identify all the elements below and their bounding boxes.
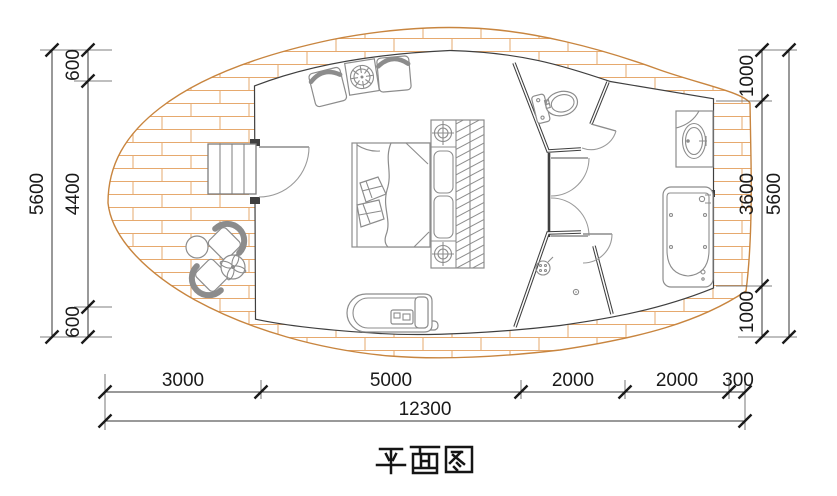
dim-left-600-top: 600 [63,49,84,81]
page-title-text: 平面图 [356,438,496,482]
daybed-cushion [415,297,428,328]
hanging-rail [456,120,484,268]
dim-left-overall: 5600 [27,173,48,215]
dim-right-1000-bottom: 1000 [737,291,758,333]
dim-right-overall: 5600 [764,173,785,215]
dim-right-1000-top: 1000 [737,55,758,97]
deck-round-table [186,236,208,258]
floor-plan-drawing: 600 4400 600 5600 1000 3600 1000 5600 30… [0,0,837,496]
dim-right-3600: 3600 [737,173,758,215]
lounge-chair-right [377,56,412,93]
door-jamb-bottom [250,197,260,204]
burner-table [345,59,380,95]
dim-bottom-overall: 12300 [399,399,452,420]
floor-plan-page: 600 4400 600 5600 1000 3600 1000 5600 30… [0,0,837,496]
vanity-sink [676,111,713,167]
dim-bottom-3000: 3000 [162,370,204,391]
bed [352,143,430,247]
bathtub [663,187,713,287]
dim-bottom-2000-a: 2000 [552,370,594,391]
dim-bottom-2000-b: 2000 [656,370,698,391]
dim-bottom-5000: 5000 [370,370,412,391]
daybed [347,294,438,332]
dim-bottom-300: 300 [722,370,754,391]
dim-left-600-bottom: 600 [63,306,84,338]
duvet [385,143,430,247]
dim-left-4400: 4400 [63,173,84,215]
dressing-unit [431,120,484,268]
entry-steps [208,144,256,194]
